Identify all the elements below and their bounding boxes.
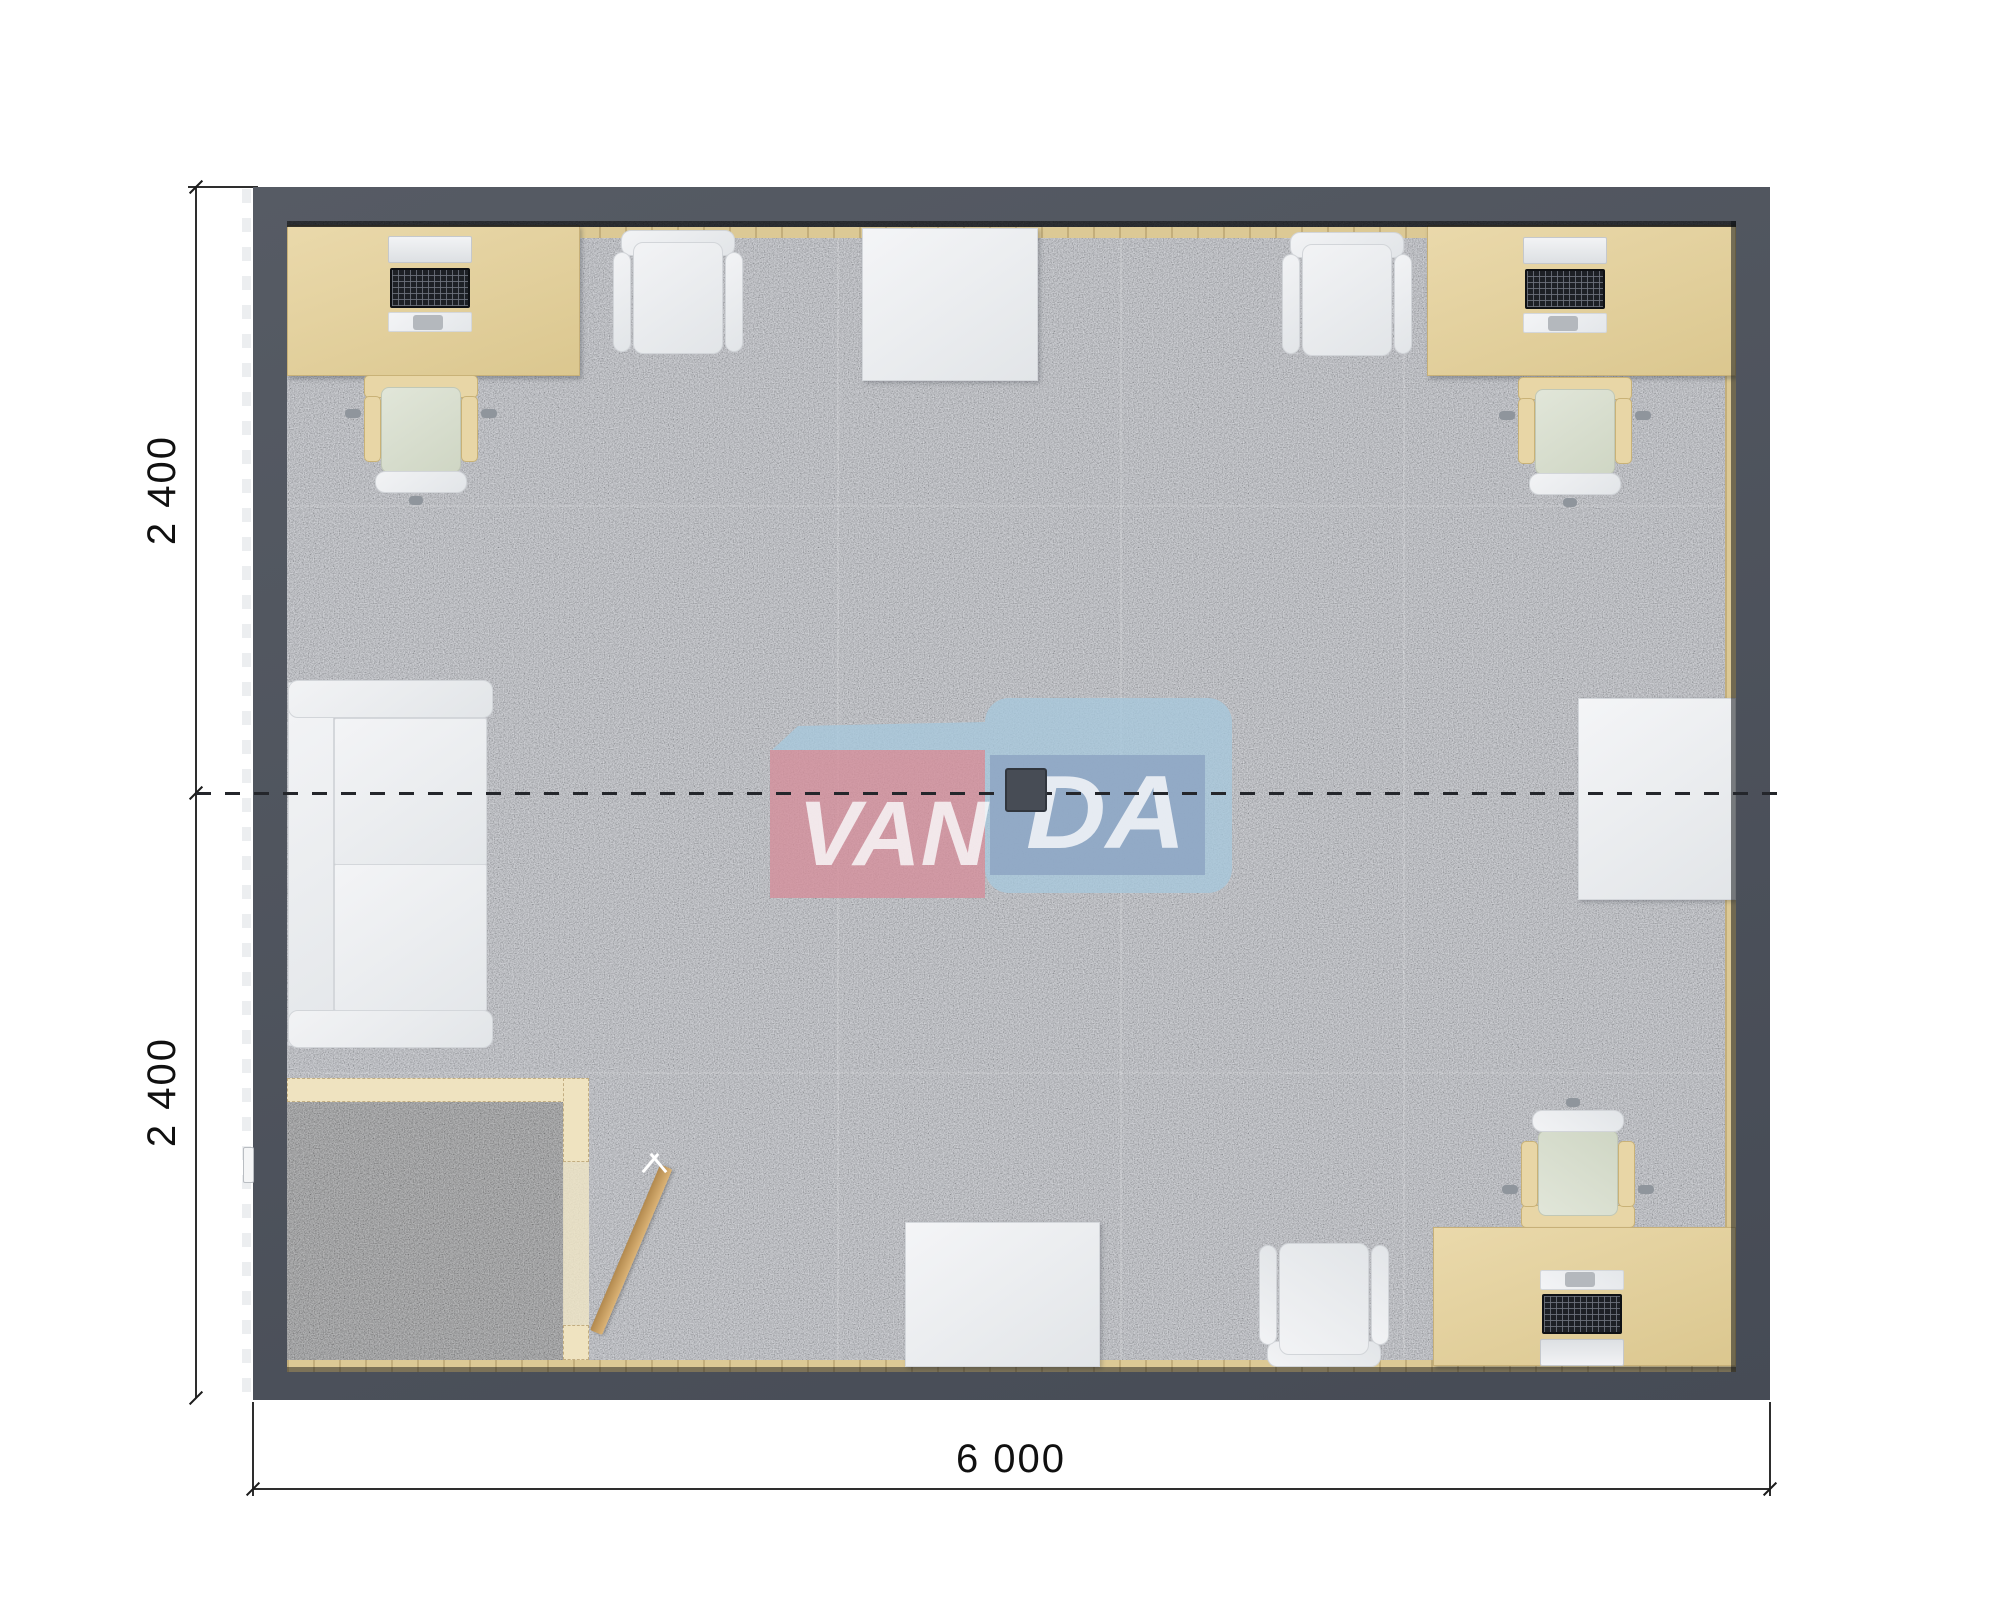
desk-chair-bottom-right-part-0 — [1502, 1185, 1518, 1194]
sofa-part-4 — [334, 864, 487, 1011]
carpet-seam-v2 — [1403, 233, 1405, 1360]
dimension-extension-bottom-left — [252, 1402, 254, 1496]
dimension-extension-top — [188, 186, 258, 188]
wall-shadow-right — [1731, 221, 1736, 1372]
desk-chair-top-right-part-7 — [1529, 473, 1621, 495]
vestibule-partition-right-upper — [563, 1078, 589, 1162]
desk-chair-top-right-part-5 — [1615, 398, 1632, 464]
computer-bottom-right-part-1 — [1542, 1294, 1622, 1334]
computer-bottom-right-part-0 — [1540, 1339, 1624, 1366]
carpet-seam-h1 — [287, 1072, 1736, 1074]
desk-chair-top-right-part-1 — [1635, 411, 1651, 420]
desk-chair-top-right-part-0 — [1499, 411, 1515, 420]
desk-chair-top-left-part-2 — [409, 496, 423, 505]
sofa — [288, 680, 493, 1048]
computer-top-right — [1523, 237, 1607, 341]
desk-chair-bottom-right-part-6 — [1538, 1130, 1618, 1216]
desk-chair-bottom-right-part-4 — [1521, 1141, 1538, 1207]
office-chair-bottom-part-1 — [1259, 1245, 1277, 1345]
desk-chair-top-left — [345, 375, 497, 505]
desk-chair-top-left-part-0 — [345, 409, 361, 418]
desk-chair-bottom-right-part-2 — [1566, 1098, 1580, 1107]
computer-top-left — [388, 236, 472, 340]
office-chair-top-1-part-2 — [725, 252, 743, 352]
desk-chair-bottom-right-part-7 — [1532, 1110, 1624, 1132]
desk-chair-bottom-right — [1502, 1098, 1654, 1228]
sofa-part-1 — [288, 680, 493, 718]
office-chair-top-1-part-3 — [633, 242, 723, 354]
desk-chair-top-right-part-6 — [1535, 389, 1615, 475]
ceiling-lamp — [1005, 768, 1047, 812]
entry-door-handle — [243, 1147, 254, 1183]
wall-shadow-bottom — [287, 1367, 1736, 1372]
vanda-watermark: VANDA — [770, 693, 1235, 908]
desk-chair-top-right — [1499, 377, 1651, 507]
dimension-line-horizontal — [253, 1488, 1770, 1490]
table-top — [862, 228, 1038, 381]
computer-top-left-part-1 — [390, 268, 470, 308]
computer-bottom-right — [1540, 1262, 1624, 1366]
office-chair-top-2-part-3 — [1302, 244, 1392, 356]
office-chair-bottom-part-3 — [1279, 1243, 1369, 1355]
desk-chair-bottom-right-part-5 — [1618, 1141, 1635, 1207]
desk-chair-top-left-part-6 — [381, 387, 461, 473]
computer-top-right-part-1 — [1525, 269, 1605, 309]
vestibule-partition-top — [287, 1078, 571, 1102]
office-chair-top-2-part-2 — [1394, 254, 1412, 354]
office-chair-top-2 — [1282, 232, 1412, 360]
sofa-part-0 — [288, 682, 334, 1046]
floor-plan-image: VANDA 2 400 2 400 6 000 — [0, 0, 2000, 1598]
office-chair-bottom — [1259, 1239, 1389, 1367]
desk-chair-top-left-part-5 — [461, 396, 478, 462]
desk-chair-top-left-part-7 — [375, 471, 467, 493]
desk-chair-top-left-part-4 — [364, 396, 381, 462]
desk-chair-top-right-part-4 — [1518, 398, 1535, 464]
computer-top-left-part-0 — [388, 236, 472, 263]
section-line-dashed — [196, 792, 1790, 795]
watermark-text-da: DA — [1026, 755, 1186, 871]
dimension-label-height-upper: 2 400 — [139, 380, 185, 600]
computer-top-left-part-3 — [413, 315, 443, 330]
dimension-extension-bottom-right — [1769, 1402, 1771, 1496]
desk-chair-bottom-right-part-1 — [1638, 1185, 1654, 1194]
dimension-label-width: 6 000 — [901, 1436, 1121, 1482]
computer-bottom-right-part-3 — [1565, 1272, 1595, 1287]
table-right — [1578, 698, 1736, 900]
desk-chair-top-left-part-1 — [481, 409, 497, 418]
office-chair-bottom-part-2 — [1371, 1245, 1389, 1345]
computer-top-right-part-3 — [1548, 316, 1578, 331]
dimension-label-height-lower: 2 400 — [139, 982, 185, 1202]
vestibule-door-threshold — [563, 1162, 589, 1325]
table-bottom — [905, 1222, 1100, 1367]
wall-shadow-top — [287, 221, 1736, 227]
office-chair-top-1 — [613, 230, 743, 358]
watermark-text-van: VAN — [798, 783, 991, 885]
sofa-part-2 — [288, 1010, 493, 1048]
office-chair-top-1-part-1 — [613, 252, 631, 352]
office-chair-top-2-part-1 — [1282, 254, 1300, 354]
computer-top-right-part-0 — [1523, 237, 1607, 264]
desk-chair-top-right-part-2 — [1563, 498, 1577, 507]
vestibule-partition-right-lower — [563, 1325, 589, 1360]
